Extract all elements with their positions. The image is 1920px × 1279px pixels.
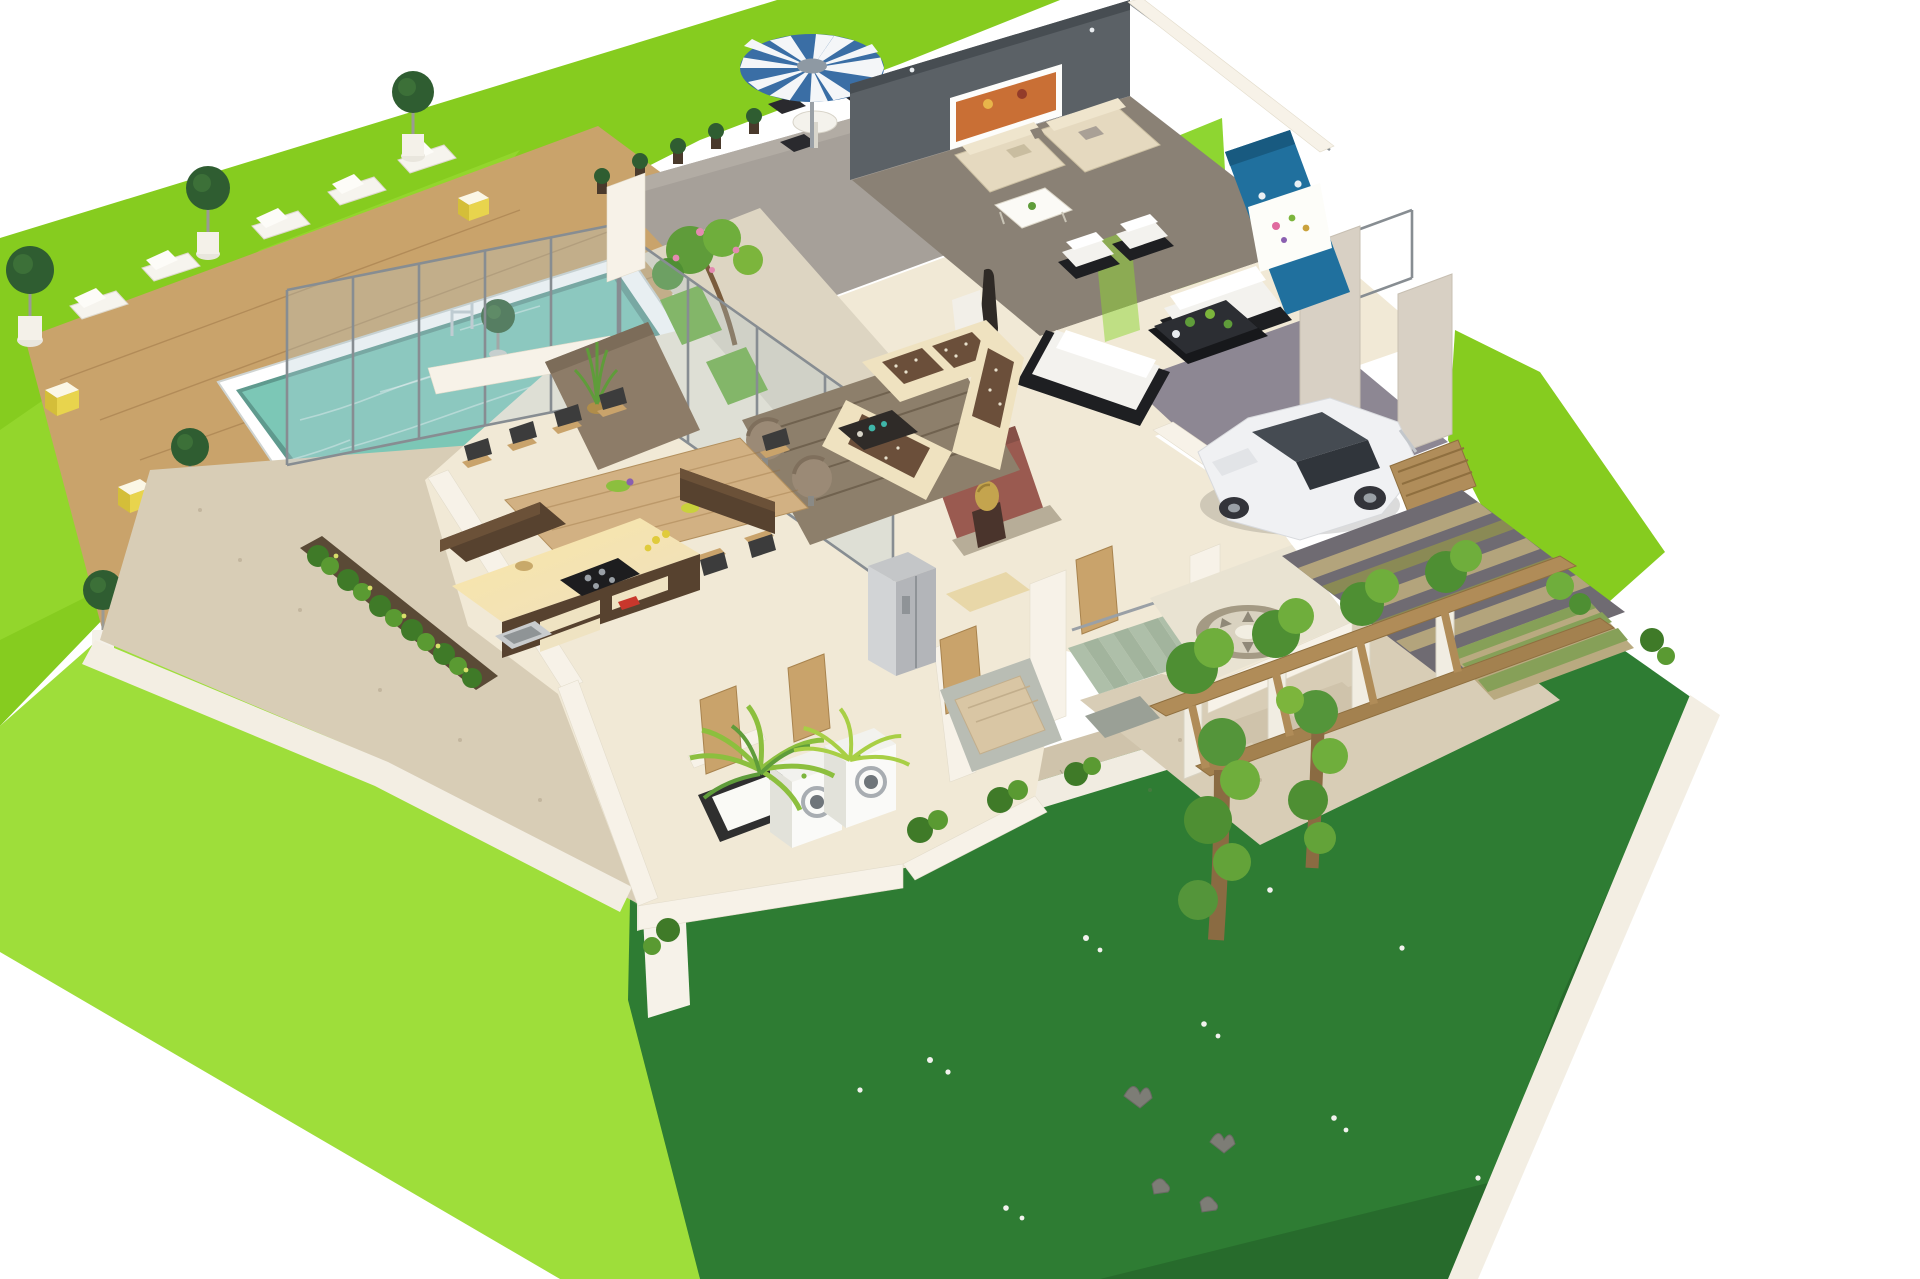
spotlight-icon	[1294, 180, 1301, 187]
spotlight-icon	[1258, 192, 1265, 199]
floorplan-render	[0, 0, 1920, 1279]
garage-wall	[1398, 274, 1452, 454]
scene-canvas	[0, 0, 1920, 1279]
fridge	[868, 552, 936, 676]
